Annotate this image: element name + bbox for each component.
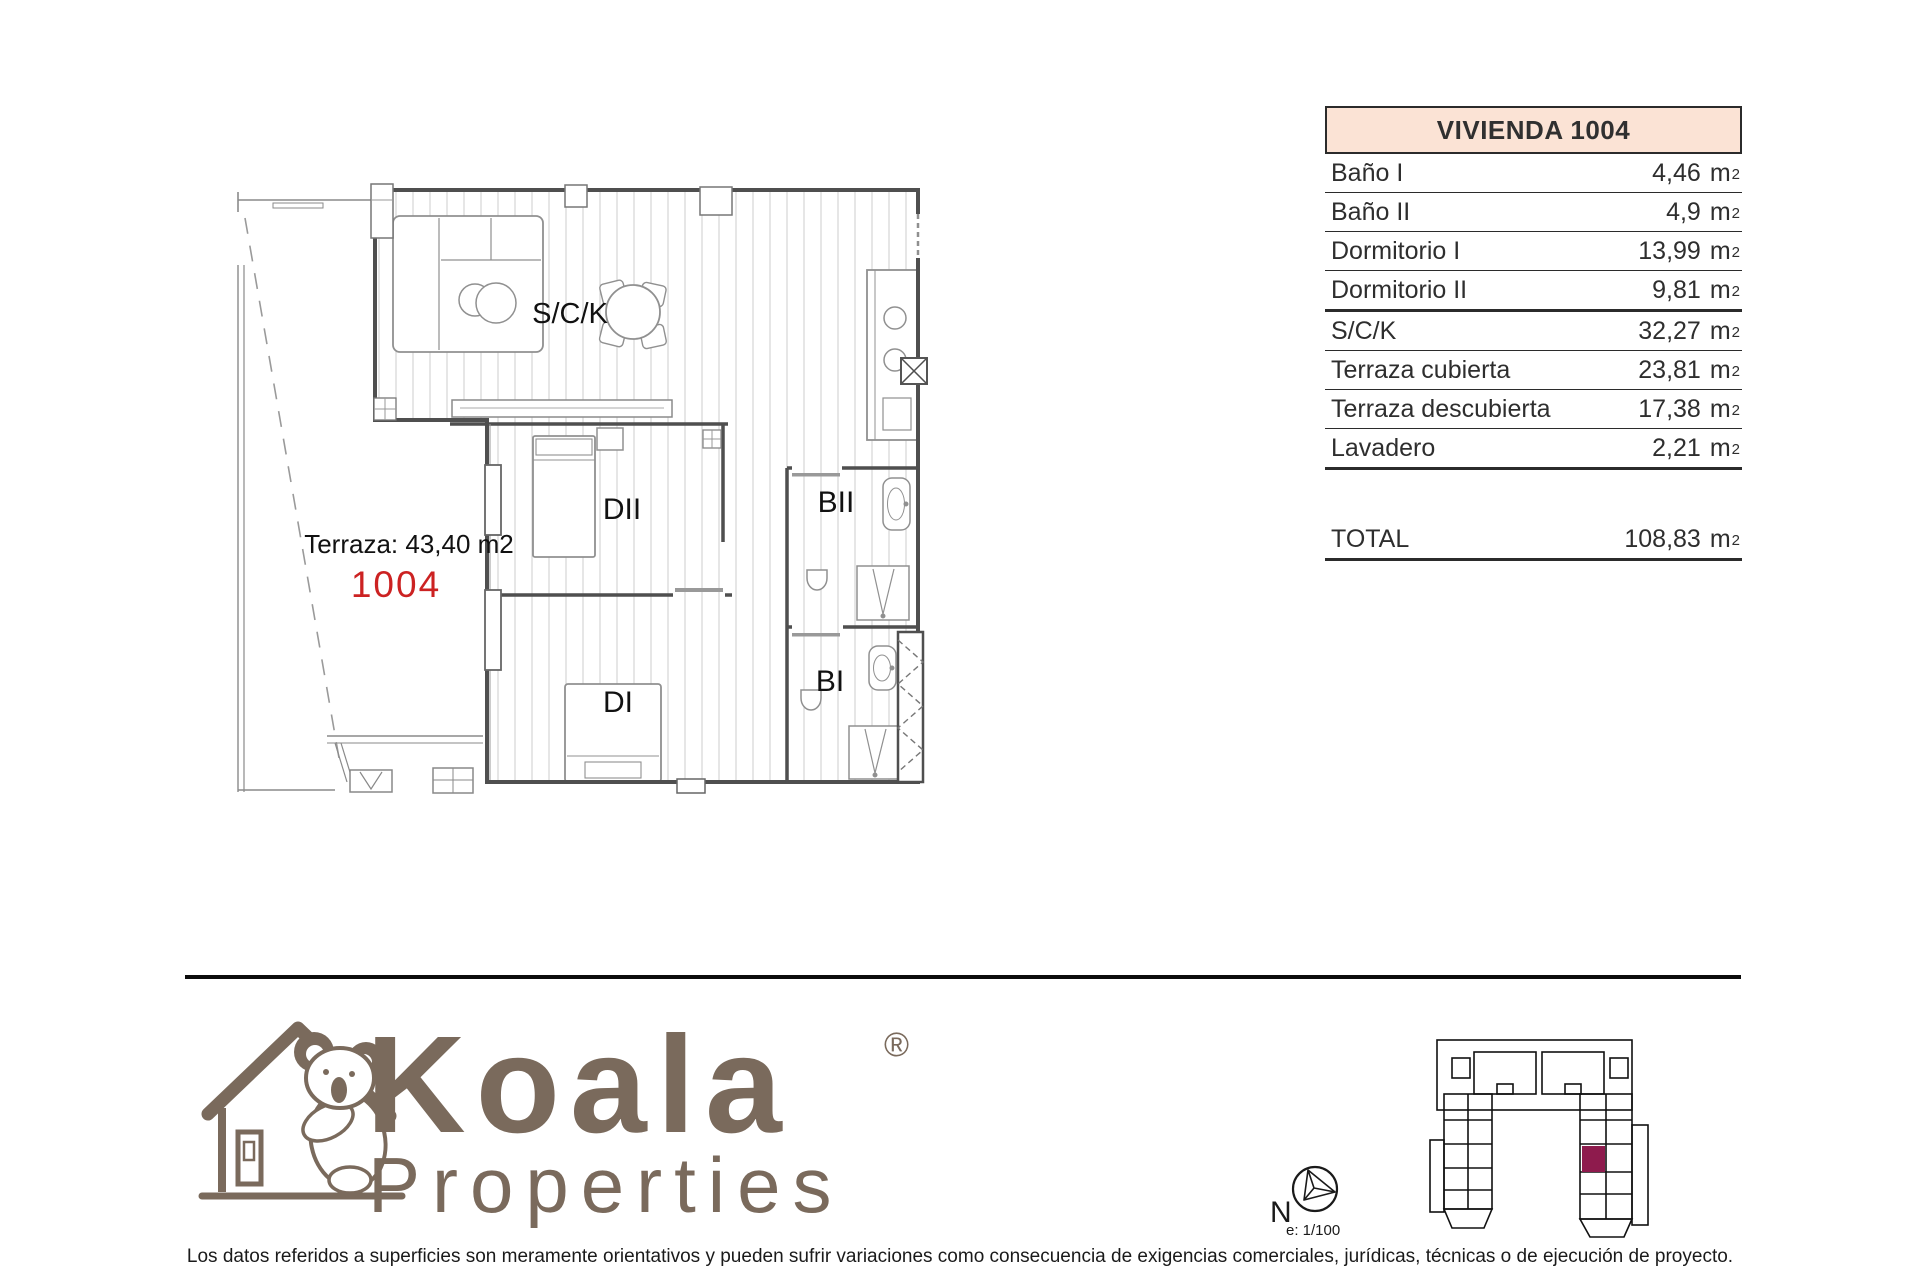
table-row: Terraza descubierta 17,38m2 <box>1325 390 1742 429</box>
row-value: 13,99m2 <box>1638 237 1740 266</box>
terrace-area-label: Terraza: 43,40 m2 <box>304 529 514 559</box>
table-row: Baño I 4,46m2 <box>1325 154 1742 193</box>
compass-icon <box>1282 1158 1352 1224</box>
row-value: 9,81m2 <box>1652 276 1740 305</box>
brand-subtitle: Properties <box>368 1146 844 1224</box>
footer-divider <box>185 975 1741 979</box>
unit-number-label: 1004 <box>351 564 441 605</box>
table-row: Dormitorio I 13,99m2 <box>1325 232 1742 271</box>
row-value: 4,9m2 <box>1666 198 1740 227</box>
row-label: S/C/K <box>1331 317 1396 346</box>
table-row: Terraza cubierta 23,81m2 <box>1325 351 1742 390</box>
row-label: Terraza cubierta <box>1331 356 1510 385</box>
row-value: 32,27m2 <box>1638 317 1740 346</box>
label-bedroom-2: DII <box>603 493 641 526</box>
row-label: Lavadero <box>1331 434 1435 463</box>
row-label: Baño II <box>1331 198 1410 227</box>
brand-name: Koala <box>366 1016 792 1154</box>
table-row: Baño II 4,9m2 <box>1325 193 1742 232</box>
area-table: VIVIENDA 1004 Baño I 4,46m2 Baño II 4,9m… <box>1325 106 1742 561</box>
label-living: S/C/K <box>532 298 608 330</box>
table-total-row: TOTAL 108,83m2 <box>1325 520 1742 561</box>
total-value: 108,83m2 <box>1624 525 1740 554</box>
row-label: Terraza descubierta <box>1331 395 1551 424</box>
disclaimer-text: Los datos referidos a superficies son me… <box>0 1246 1920 1268</box>
highlighted-unit <box>1582 1146 1605 1172</box>
compass-scale-label: e: 1/100 <box>1286 1222 1340 1239</box>
table-row: Lavadero 2,21m2 <box>1325 429 1742 470</box>
row-label: Dormitorio II <box>1331 276 1467 305</box>
table-row: S/C/K 32,27m2 <box>1325 312 1742 351</box>
table-spacer <box>1325 470 1742 520</box>
page: S/C/K DII BII DI BI Terraza: 43,40 m2 10… <box>0 0 1920 1280</box>
building-locator-icon <box>1422 1030 1667 1242</box>
registered-mark: ® <box>884 1026 909 1065</box>
row-value: 4,46m2 <box>1652 159 1740 188</box>
area-table-title: VIVIENDA 1004 <box>1325 106 1742 154</box>
row-value: 23,81m2 <box>1638 356 1740 385</box>
label-bath-1: BI <box>816 665 844 698</box>
row-label: Baño I <box>1331 159 1403 188</box>
label-bath-2: BII <box>818 486 855 519</box>
label-bedroom-1: DI <box>603 686 633 719</box>
row-value: 2,21m2 <box>1652 434 1740 463</box>
row-label: Dormitorio I <box>1331 237 1460 266</box>
total-label: TOTAL <box>1331 525 1409 554</box>
table-row: Dormitorio II 9,81m2 <box>1325 271 1742 312</box>
row-value: 17,38m2 <box>1638 395 1740 424</box>
floor-plan-drawing: S/C/K DII BII DI BI Terraza: 43,40 m2 10… <box>235 170 950 815</box>
